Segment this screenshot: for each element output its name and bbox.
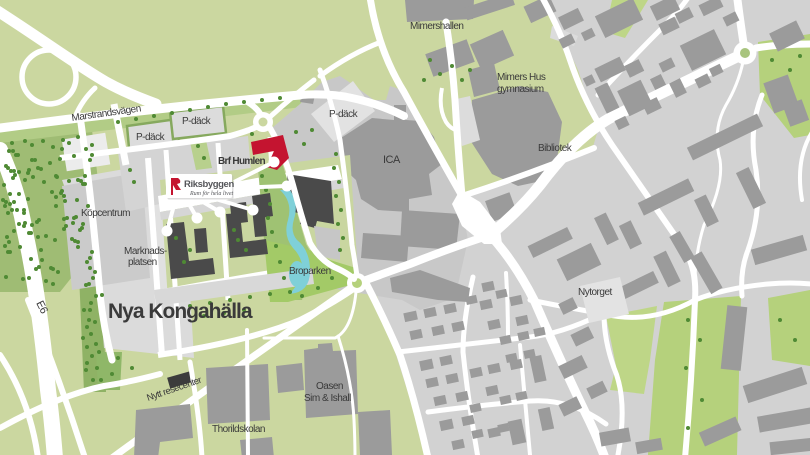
svg-text:P-däck: P-däck [329, 109, 359, 120]
svg-text:gymnasium: gymnasium [497, 84, 544, 95]
svg-text:Broparken: Broparken [289, 266, 331, 277]
svg-text:Mimers Hus: Mimers Hus [497, 72, 546, 83]
svg-text:platsen: platsen [128, 257, 157, 268]
svg-text:Nytorget: Nytorget [578, 287, 613, 298]
svg-text:P-däck: P-däck [136, 132, 166, 143]
svg-text:Mimershallen: Mimershallen [410, 21, 463, 32]
svg-text:Thorildskolan: Thorildskolan [212, 424, 265, 435]
svg-text:Brf Humlen: Brf Humlen [218, 156, 265, 167]
svg-text:ICA: ICA [383, 154, 401, 166]
svg-text:Sim & Ishall: Sim & Ishall [304, 393, 351, 404]
svg-text:Köpcentrum: Köpcentrum [81, 208, 130, 219]
svg-text:Riksbyggen: Riksbyggen [184, 179, 234, 190]
svg-text:Marknads-: Marknads- [124, 246, 167, 257]
svg-text:Bibliotek: Bibliotek [538, 143, 573, 154]
svg-text:P-däck: P-däck [182, 116, 212, 127]
svg-text:Nya Kongahälla: Nya Kongahälla [108, 300, 253, 323]
svg-text:Oasen: Oasen [316, 381, 343, 392]
svg-text:Rum för hela livet: Rum för hela livet [189, 190, 233, 197]
